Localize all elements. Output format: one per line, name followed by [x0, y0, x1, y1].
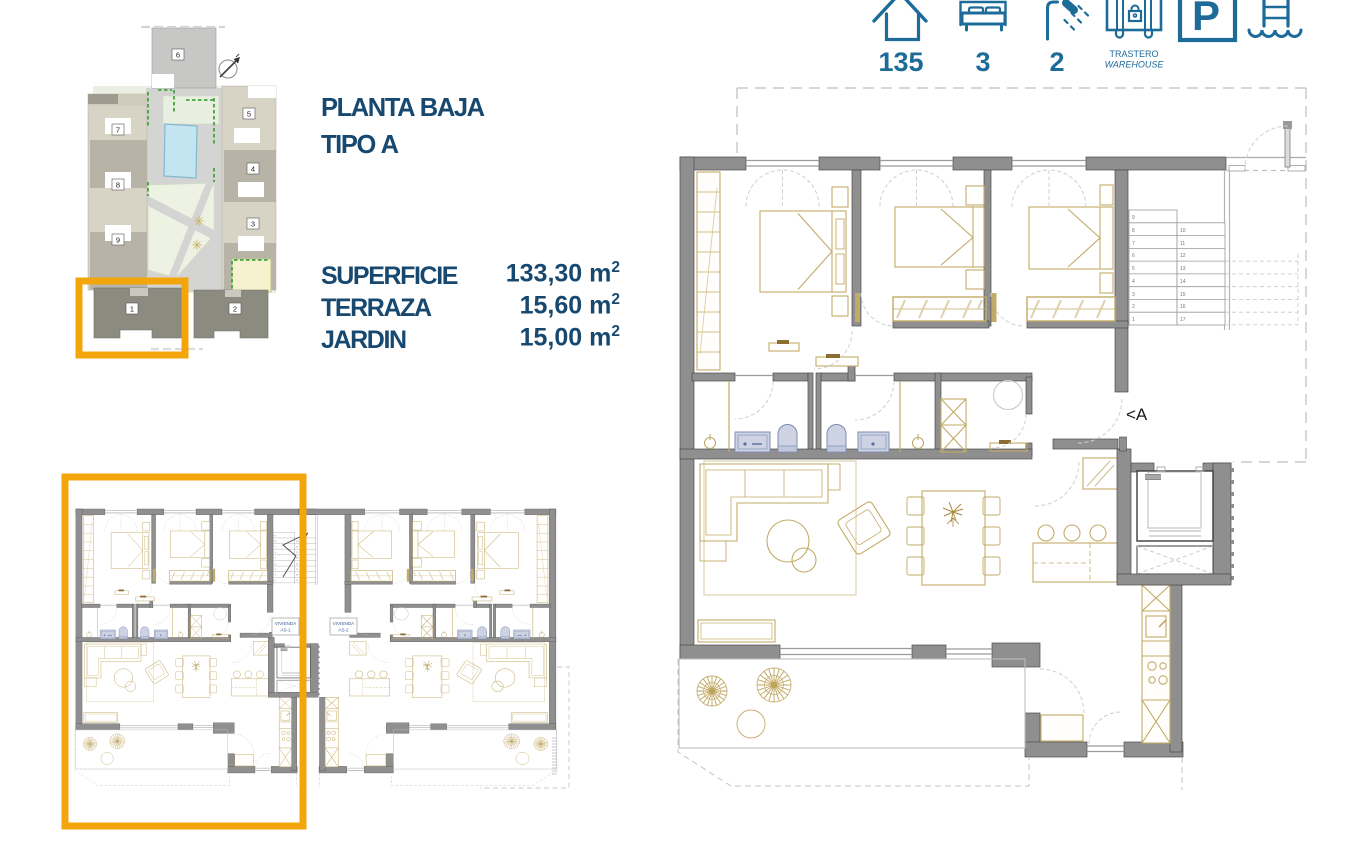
- svg-text:VIVIENDA: VIVIENDA: [275, 621, 297, 626]
- svg-text:1: 1: [1132, 317, 1135, 323]
- svg-text:2: 2: [1132, 304, 1135, 310]
- svg-text:1: 1: [130, 305, 134, 314]
- svg-text:5: 5: [247, 110, 251, 119]
- svg-text:<A: <A: [1126, 405, 1148, 424]
- svg-text:16: 16: [1180, 304, 1186, 310]
- svg-text:7: 7: [1132, 241, 1135, 247]
- svg-text:14: 14: [1180, 279, 1186, 285]
- svg-text:13: 13: [1180, 266, 1186, 272]
- svg-text:6: 6: [176, 51, 180, 60]
- svg-text:9: 9: [116, 236, 120, 245]
- svg-text:AS-1: AS-1: [280, 628, 291, 633]
- svg-text:VIVIENDA: VIVIENDA: [333, 621, 355, 626]
- svg-text:10: 10: [1180, 228, 1186, 234]
- svg-text:2: 2: [233, 305, 237, 314]
- svg-text:3: 3: [1132, 292, 1135, 298]
- svg-text:5: 5: [1132, 266, 1135, 272]
- svg-text:17: 17: [1180, 317, 1186, 323]
- svg-text:15: 15: [1180, 292, 1186, 298]
- svg-text:11: 11: [1180, 241, 1185, 247]
- svg-text:4: 4: [1132, 279, 1135, 285]
- svg-text:12: 12: [1180, 253, 1186, 259]
- svg-text:AS-2: AS-2: [338, 628, 349, 633]
- svg-text:6: 6: [1132, 253, 1135, 259]
- svg-text:9: 9: [1132, 215, 1135, 221]
- svg-text:3: 3: [251, 220, 255, 229]
- svg-text:P: P: [1192, 0, 1220, 39]
- svg-text:8: 8: [116, 181, 120, 190]
- svg-text:8: 8: [1132, 228, 1135, 234]
- svg-text:4: 4: [251, 165, 255, 174]
- svg-text:7: 7: [116, 126, 120, 135]
